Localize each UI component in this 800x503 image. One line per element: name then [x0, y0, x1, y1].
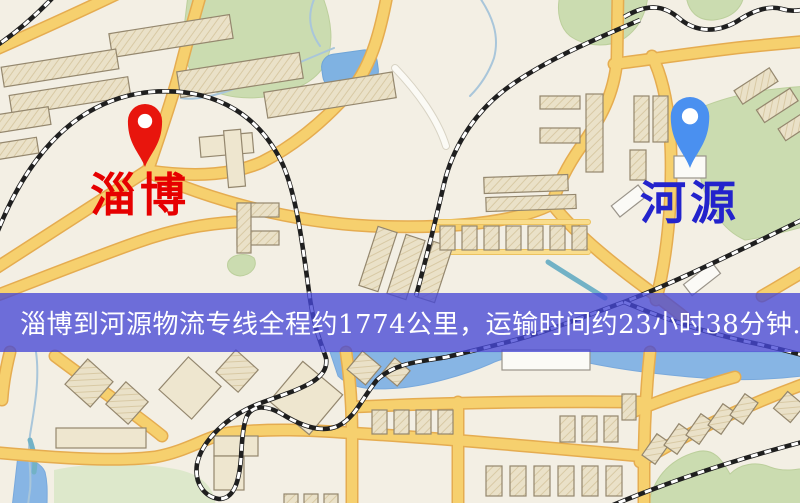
- origin-pin[interactable]: [127, 101, 163, 170]
- route-info-text: 淄博到河源物流专线全程约1774公里，运输时间约23小时38分钟.: [0, 304, 800, 341]
- route-info-banner: 淄博到河源物流专线全程约1774公里，运输时间约23小时38分钟.: [0, 293, 800, 352]
- map-canvas[interactable]: [0, 0, 800, 503]
- destination-label: 河源: [640, 180, 740, 226]
- destination-pin[interactable]: [667, 97, 713, 168]
- origin-label: 淄博: [90, 172, 190, 218]
- location-pin-icon: [127, 101, 163, 170]
- location-pin-icon: [667, 97, 713, 168]
- map-screenshot: 淄博 河源 淄博到河源物流专线全程约1774公里，运输时间约23小时38分钟.: [0, 0, 800, 503]
